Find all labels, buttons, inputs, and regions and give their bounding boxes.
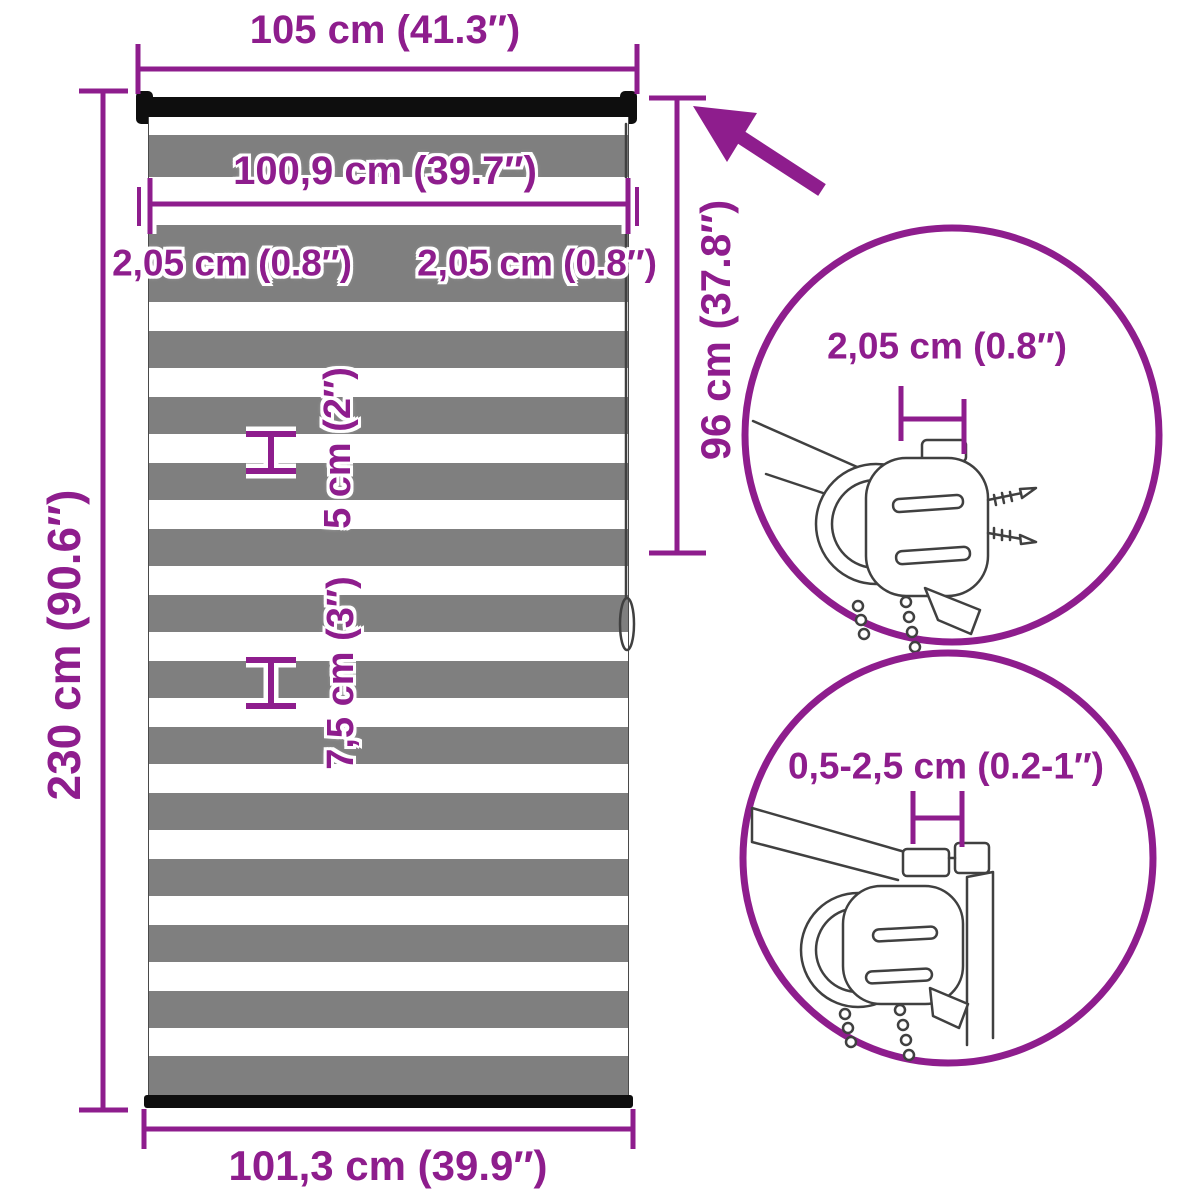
label-left-side-gap: 2,05 cm (0.8″) [112, 245, 352, 282]
label-drop-height: 96 cm (37.8″) [695, 200, 737, 461]
label-top-width: 105 cm (41.3″) [250, 10, 520, 50]
dimension-line-clamp-range [913, 791, 962, 847]
detail-circle-bracket [745, 228, 1159, 652]
bracket-illustration [753, 421, 1036, 652]
label-bracket-detail-width: 2,05 cm (0.8″) [827, 328, 1067, 365]
detail-circle-clamp [743, 653, 1153, 1063]
screw-icon [988, 488, 1036, 544]
label-fabric-stripe-height: 7,5 cm (3″) [322, 576, 360, 770]
bead-chain [853, 597, 920, 652]
diagram-linework [0, 0, 1200, 1200]
dimension-marker-fabric-stripe [246, 660, 296, 706]
label-sheer-stripe-height: 5 cm (2″) [319, 367, 357, 529]
arrow-icon [693, 106, 822, 190]
label-fabric-width: 100,9 cm (39.7″) [233, 151, 537, 191]
clamp-illustration [752, 808, 993, 1060]
label-bottom-width: 101,3 cm (39.9″) [229, 1145, 548, 1187]
label-clamp-detail-range: 0,5-2,5 cm (0.2-1″) [788, 748, 1104, 785]
label-right-side-gap: 2,05 cm (0.8″) [417, 245, 657, 282]
dimension-marker-sheer-stripe [246, 434, 296, 471]
dimension-diagram: 105 cm (41.3″) 100,9 cm (39.7″) 2,05 cm … [0, 0, 1200, 1200]
label-total-height: 230 cm (90.6″) [41, 490, 87, 801]
